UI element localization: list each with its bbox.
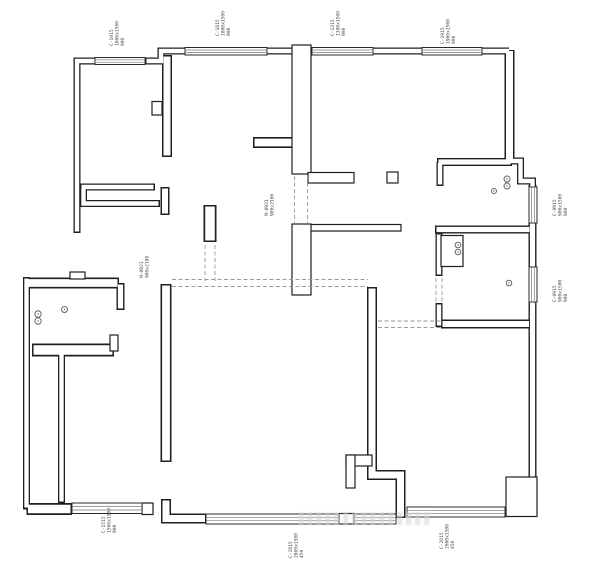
dimension-label-line: C-1015 [109,29,115,46]
dimension-label-line: 900x1500 [558,280,564,302]
fixture-dot [64,309,65,310]
window-band [422,48,482,56]
fixture-dot [493,190,494,191]
window-frame [312,48,373,56]
dimension-label-line: C-1915 [440,27,446,44]
dimension-label-line: C-2015 [439,532,445,549]
dimension-label-line: 900x1500 [558,194,564,216]
divider-column-upper [292,45,311,174]
fixture-dot [457,244,458,245]
dimension-label-line: 900 [226,27,232,36]
dimension-label-line: C-1515 [101,516,107,533]
cabinet-bar [308,173,354,184]
dimension-label-line: 900 [112,524,118,533]
window-band [95,58,145,65]
window-frame [422,48,482,56]
dimension-label-line: 1800x1500 [221,11,227,36]
square-column [387,172,398,183]
dimension-label-line: 450 [299,549,305,558]
window-band [529,267,537,302]
floor-plan-drawing: C-10151000x1500900C-18151800x1500900C-13… [0,0,600,571]
dimension-label-line: M-0921 [139,261,145,278]
dimension-label-line: 450 [450,540,456,549]
dimension-label-line: 900 [120,37,126,46]
dimension-label-line: C-1815 [215,19,221,36]
fixture-dot [457,251,458,252]
wall-niche [346,455,355,488]
dimension-label-line: 900x2100 [270,194,276,216]
watermark [299,512,431,528]
window-pier [142,503,153,515]
window-frame [529,187,537,223]
dimension-label-line: 900x2100 [145,256,151,278]
pier-bump [152,102,162,116]
dimension-label-line: 900 [341,27,347,36]
dimension-label-line: C-1315 [330,19,336,36]
fixture-dot [37,320,38,321]
floor-plan-page: C-10151000x1500900C-18151800x1500900C-13… [0,0,600,571]
dimension-label-line: 900 [563,207,569,216]
fixture-dot [506,178,507,179]
duct-closet [441,236,463,267]
low-wall-bar [309,225,401,232]
fixture-dot [508,282,509,283]
fixture-dot [506,185,507,186]
door-jamb [110,335,118,351]
window-frame [529,267,537,302]
dimension-label-line: 1900x1500 [446,19,452,44]
window-band [185,48,267,56]
pier-bump [70,272,85,279]
fixture-dot [37,313,38,314]
dimension-label-line: C-2815 [288,541,294,558]
window-frame [95,58,145,65]
dimension-label-line: 2800x1500 [294,533,300,558]
dimension-label-line: 1500x1500 [107,508,113,533]
window-band [312,48,373,56]
corner-block [506,477,537,517]
dimension-label-line: 1000x1500 [115,21,121,46]
dimension-label-line: 1300x1500 [336,11,342,36]
divider-column-lower [292,224,311,295]
dimension-label-line: M-0921 [264,199,270,216]
dimension-label-line: C-0915 [552,285,558,302]
window-band [529,187,537,223]
window-frame [185,48,267,56]
dimension-label-line: C-0915 [552,199,558,216]
dimension-label-line: 2000x1500 [445,524,451,549]
dimension-label-line: 900 [563,293,569,302]
dimension-label-line: 900 [451,35,457,44]
